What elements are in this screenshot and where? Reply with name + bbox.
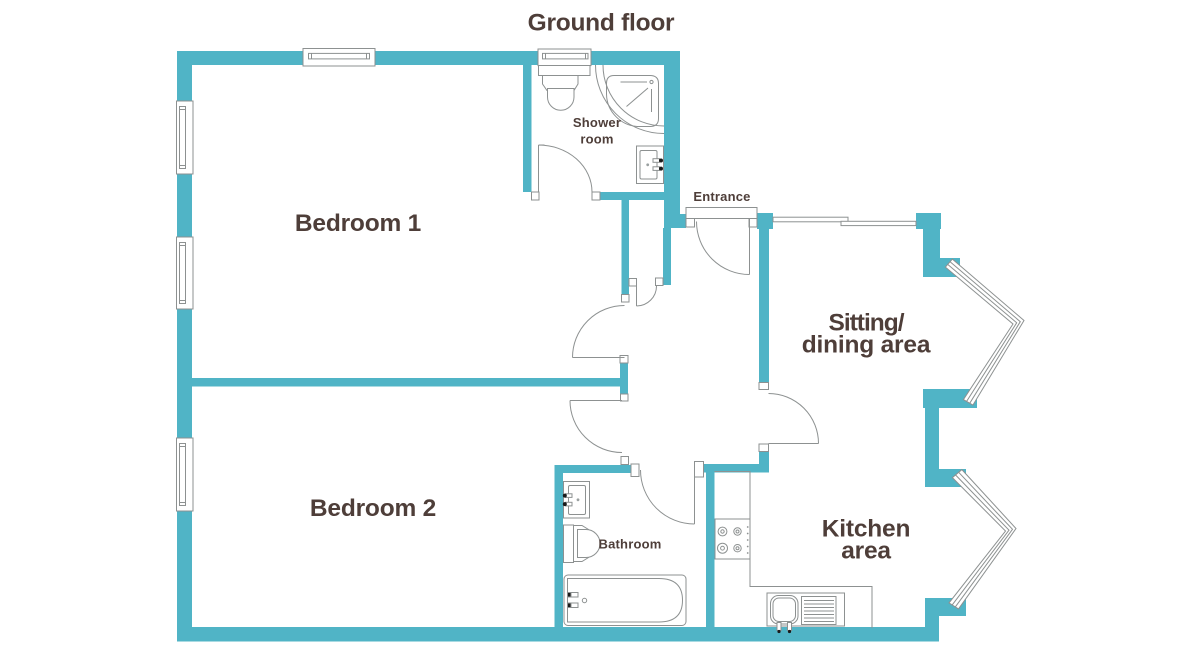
svg-text:Shower: Shower — [573, 115, 621, 130]
svg-text:Entrance: Entrance — [693, 189, 750, 204]
svg-text:room: room — [580, 132, 613, 147]
svg-text:Bedroom 2: Bedroom 2 — [310, 495, 436, 522]
svg-text:area: area — [841, 538, 891, 565]
svg-text:Ground floor: Ground floor — [528, 10, 675, 37]
svg-text:Bathroom: Bathroom — [599, 537, 662, 552]
svg-text:dining area: dining area — [802, 332, 931, 359]
svg-text:Bedroom 1: Bedroom 1 — [295, 210, 421, 237]
